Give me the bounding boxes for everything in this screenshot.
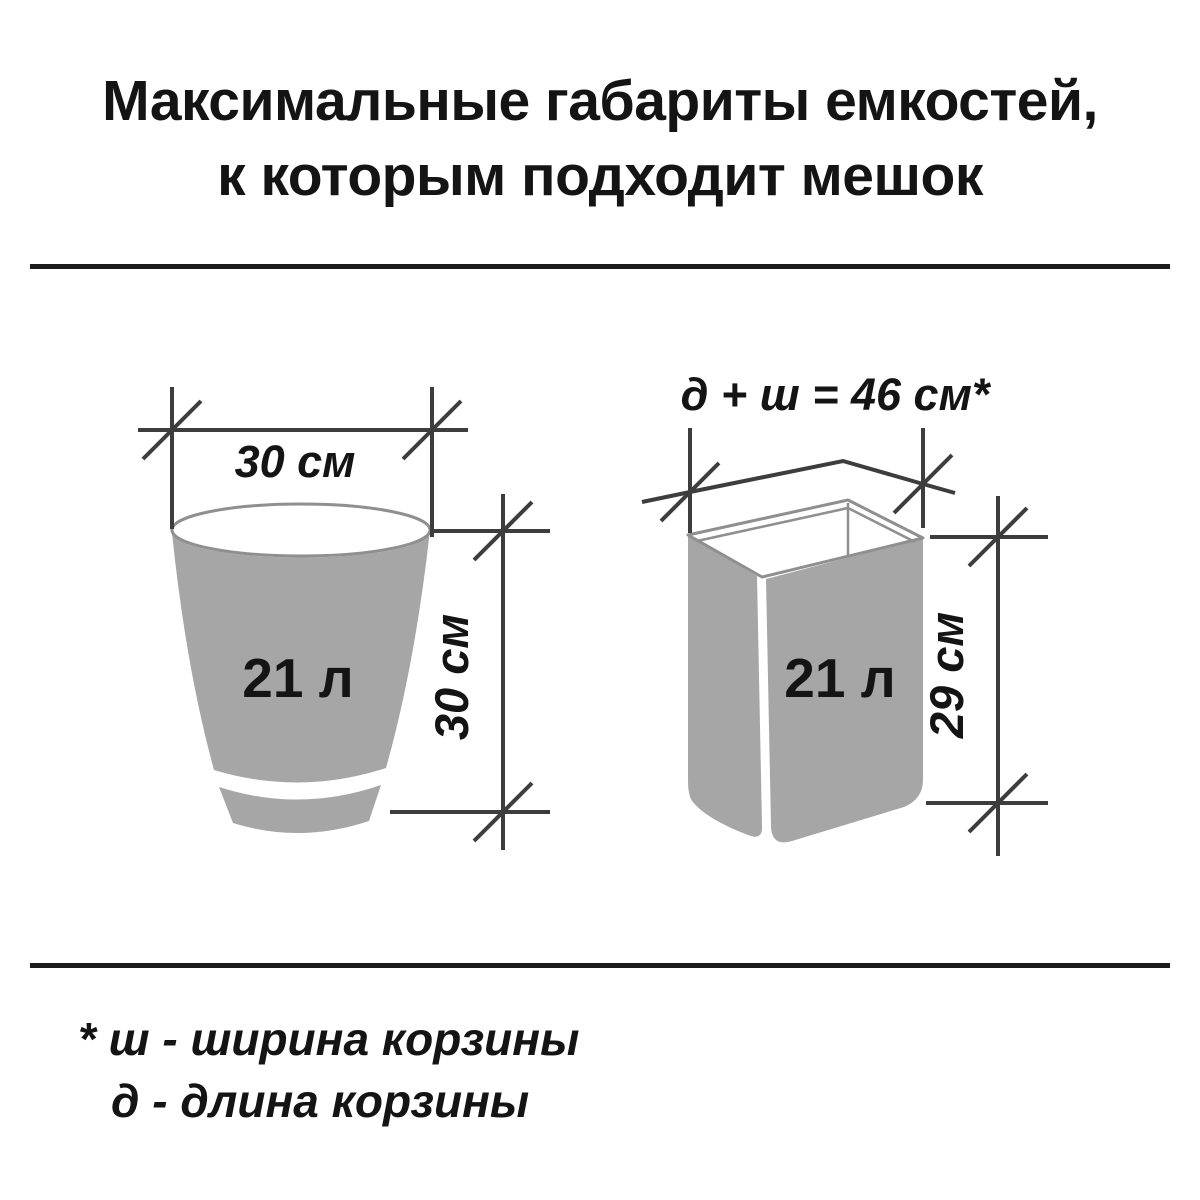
footnote-line-2: д - длина корзины [78, 1070, 579, 1132]
bucket-diagram: 21 л 30 см 30 см [138, 387, 550, 850]
basket-height-label: 29 см [920, 612, 973, 739]
basket-diagram: 21 л д + ш = 46 см* 29 см [642, 369, 1048, 856]
footnote-line-1: * ш - ширина корзины [78, 1008, 579, 1070]
bucket-base [219, 785, 381, 833]
bucket-height-label: 30 см [425, 614, 478, 740]
basket-volume-label: 21 л [784, 647, 895, 709]
basket-sum-label: д + ш = 46 см* [681, 369, 992, 420]
bucket-volume-label: 21 л [242, 647, 353, 709]
bucket-rim [172, 504, 430, 556]
footnote: * ш - ширина корзины д - длина корзины [78, 1008, 579, 1132]
divider-bottom [30, 963, 1170, 968]
bucket-width-label: 30 см [235, 436, 356, 487]
basket-left-face [688, 535, 762, 837]
